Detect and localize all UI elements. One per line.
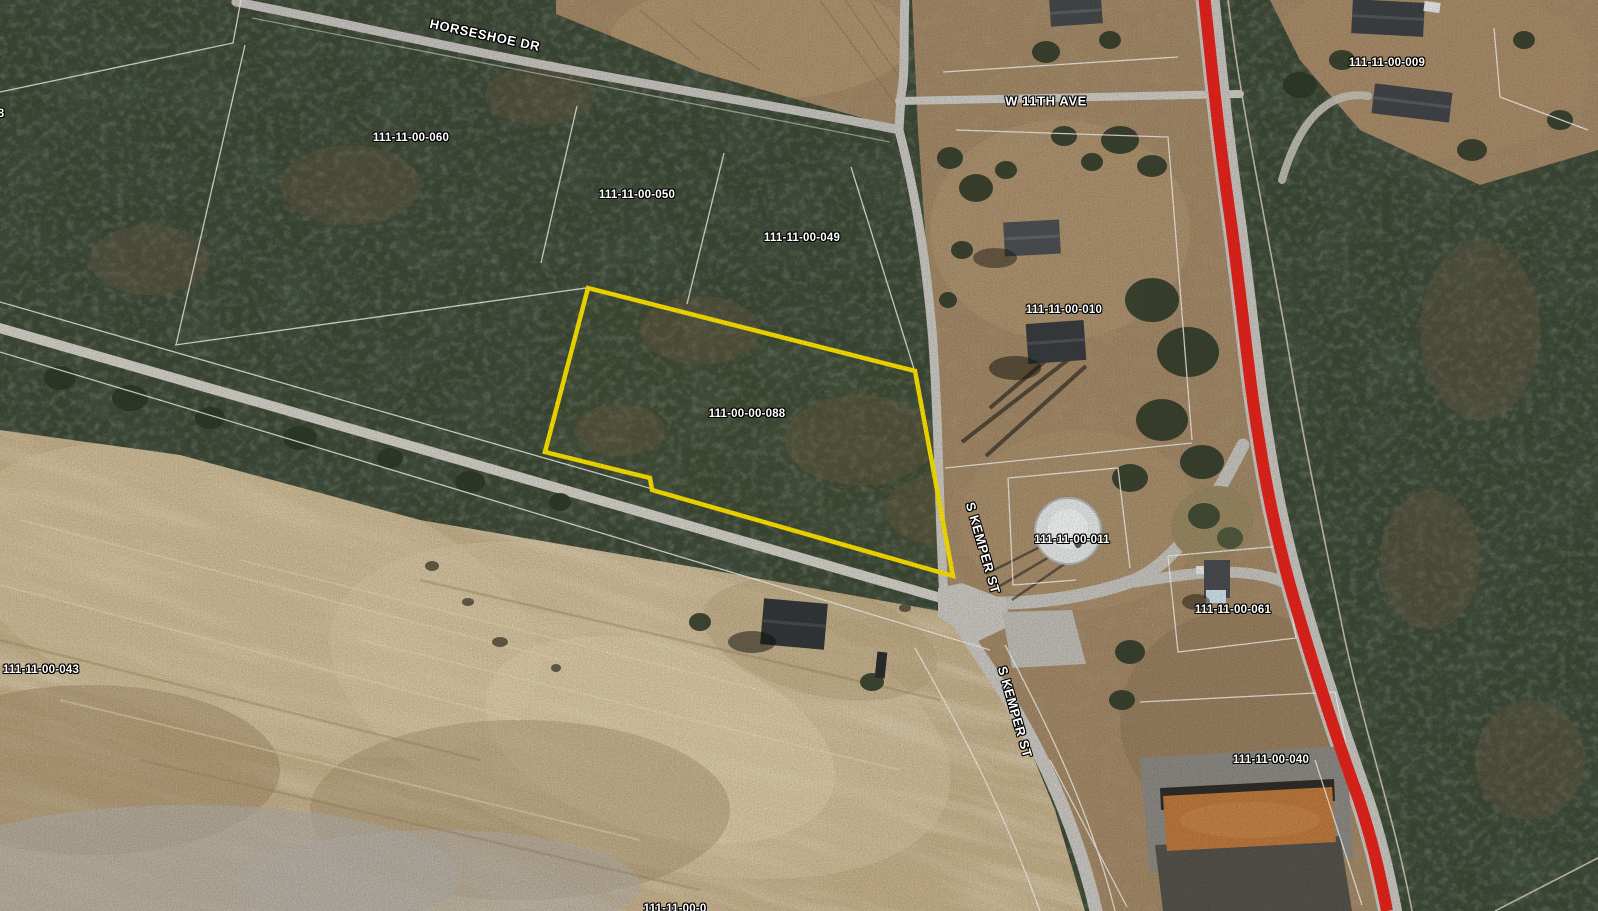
map-canvas[interactable]: HORSESHOE DRW 11TH AVES KEMPER STS KEMPE…: [0, 0, 1598, 911]
aerial-imagery: [0, 0, 1598, 911]
photo-grain: [0, 0, 1598, 911]
